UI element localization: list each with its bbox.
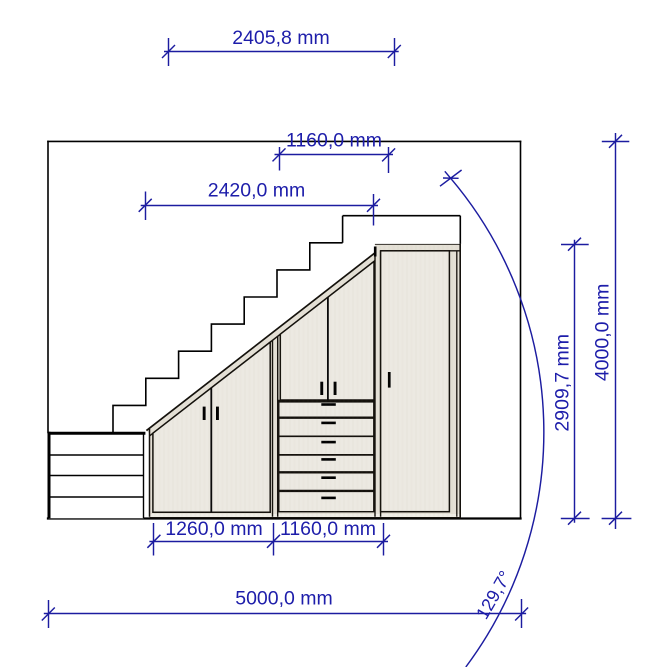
svg-text:4000,0 mm: 4000,0 mm bbox=[592, 284, 614, 382]
svg-text:2909,7 mm: 2909,7 mm bbox=[551, 334, 573, 432]
svg-text:2420,0 mm: 2420,0 mm bbox=[208, 179, 306, 201]
svg-text:1160,0 mm: 1160,0 mm bbox=[286, 130, 382, 152]
svg-text:5000,0 mm: 5000,0 mm bbox=[235, 588, 333, 610]
svg-text:1160,0 mm: 1160,0 mm bbox=[280, 518, 376, 540]
svg-text:1260,0 mm: 1260,0 mm bbox=[165, 518, 263, 540]
svg-text:2405,8 mm: 2405,8 mm bbox=[232, 27, 330, 49]
